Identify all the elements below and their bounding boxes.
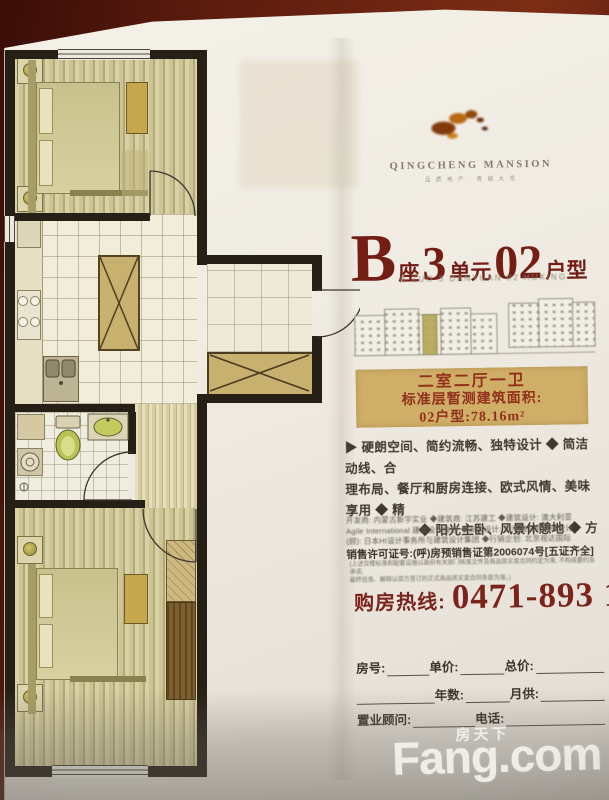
hotline-label: 购房热线: (354, 585, 446, 615)
developer-credits: 开发商: 内蒙古新宇实业 ◆建筑商: 江苏建工 ◆建筑设计: 澳大利亚 Agil… (346, 512, 600, 547)
hotline-number: 0471-893 1888 (451, 574, 609, 618)
blank-line (357, 689, 435, 705)
total-price-label: 总价: (504, 659, 535, 674)
fang-watermark: 房天下 Fang.com (391, 726, 602, 785)
unit-price-label: 单价: (429, 660, 460, 675)
fang-watermark-en: Fang.com (391, 727, 602, 784)
title-block-letter: B (350, 223, 396, 292)
building-elevation-sketch (350, 294, 597, 364)
feature-line: ▶ 硬朗空间、简约流畅、独特设计 ◆ 简洁动线、合 (345, 434, 602, 480)
years-label: 年数: (435, 688, 466, 703)
room-number-blank (387, 661, 429, 677)
phone-blank (506, 710, 605, 727)
purchase-hotline: 购房热线: 0471-893 1888 (354, 574, 609, 619)
room-number-label: 房号: (356, 661, 387, 676)
brand-tagline: 品 质 地 产 · 青 城 大 宅 (348, 173, 593, 185)
unit-info-box: 二室二厅一卫 标准层暂测建筑面积: 02户型:78.16m² (356, 366, 589, 428)
floorplan-photo: QINGCHENG MANSION 品 质 地 产 · 青 城 大 宅 B 座 … (0, 0, 609, 800)
unit-price-blank (460, 659, 504, 675)
brand-name: QINGCHENG MANSION (348, 158, 593, 173)
total-price-blank (536, 658, 605, 674)
consultant-label: 置业顾问: (357, 713, 413, 729)
highlighted-unit (423, 315, 438, 355)
horse-logo-icon (419, 100, 494, 149)
monthly-payment-blank (541, 686, 605, 702)
form-row-payment: 年数: 月供: (357, 686, 605, 705)
brochure-text-column: QINGCHENG MANSION 品 质 地 产 · 青 城 大 宅 B 座 … (0, 0, 609, 800)
years-blank (466, 687, 510, 703)
monthly-payment-label: 月供: (510, 687, 541, 702)
form-row-price: 房号: 单价: 总价: (356, 658, 604, 677)
unit-area-value: 02户型:78.16m² (356, 407, 588, 429)
